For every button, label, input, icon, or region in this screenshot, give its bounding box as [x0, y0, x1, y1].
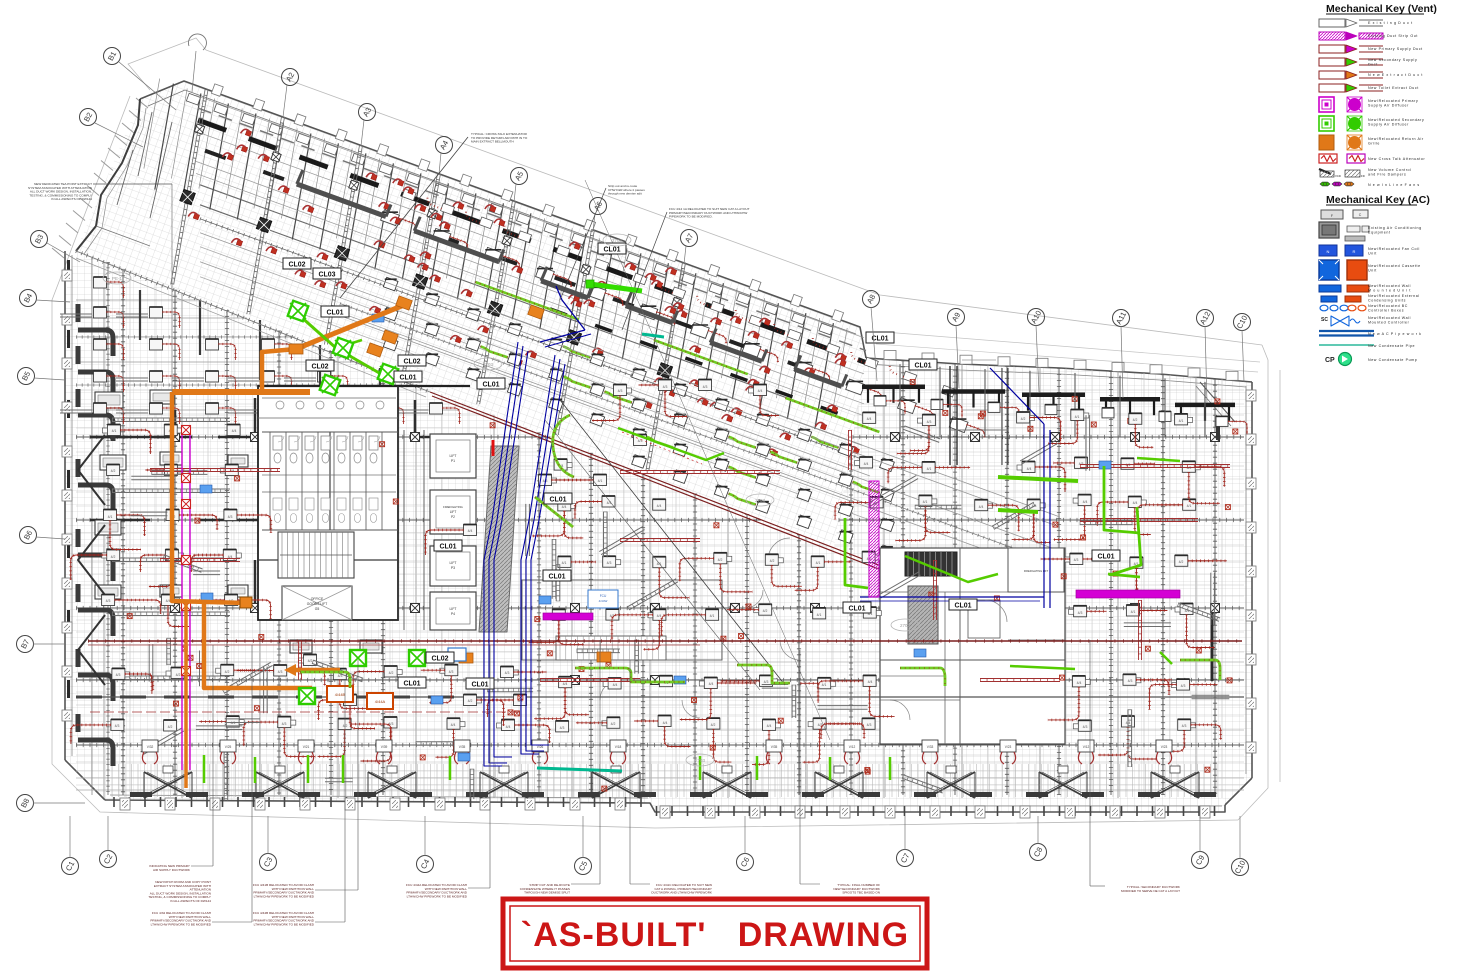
- svg-text:New/Relocated Return Air: New/Relocated Return Air: [1368, 137, 1424, 141]
- svg-text:New Condensate Pump: New Condensate Pump: [1368, 358, 1417, 362]
- svg-text:New Volume Control: New Volume Control: [1368, 168, 1412, 172]
- svg-text:Grille: Grille: [1368, 142, 1380, 146]
- svg-text:Unit: Unit: [1368, 252, 1377, 256]
- svg-text:FD: FD: [1361, 174, 1365, 178]
- svg-text:SC: SC: [1321, 317, 1328, 323]
- svg-text:E x i s t i n g D u c t: E x i s t i n g D u c t: [1368, 21, 1413, 25]
- svg-text:Duct: Duct: [1368, 63, 1378, 67]
- svg-text:New/Relocated BC: New/Relocated BC: [1368, 304, 1408, 308]
- svg-text:R: R: [1353, 249, 1356, 254]
- svg-text:New/Relocated External: New/Relocated External: [1368, 294, 1420, 298]
- svg-text:New Primary Supply Duct: New Primary Supply Duct: [1368, 47, 1423, 51]
- svg-text:Supply Air Diffuser: Supply Air Diffuser: [1368, 104, 1409, 108]
- svg-text:Supply Air Diffuser: Supply Air Diffuser: [1368, 123, 1409, 127]
- svg-text:M o u n t e d U n i t: M o u n t e d U n i t: [1368, 289, 1411, 293]
- svg-text:New Cross Talk Attenuator: New Cross Talk Attenuator: [1368, 157, 1425, 161]
- svg-text:New/Relocated Cassette: New/Relocated Cassette: [1368, 264, 1421, 268]
- svg-text:New Toilet Extract Duct: New Toilet Extract Duct: [1368, 86, 1419, 90]
- svg-text:VCD: VCD: [1335, 174, 1341, 178]
- svg-text:Equipment: Equipment: [1368, 231, 1391, 235]
- svg-text:Controller Boxes: Controller Boxes: [1368, 309, 1404, 313]
- svg-text:Existing Duct Strip Out: Existing Duct Strip Out: [1368, 34, 1418, 38]
- svg-text:Existing Air Conditioning: Existing Air Conditioning: [1368, 226, 1422, 230]
- svg-text:New/Relocated Primary: New/Relocated Primary: [1368, 99, 1418, 103]
- svg-text:New/Relocated Wall: New/Relocated Wall: [1368, 284, 1411, 288]
- svg-text:N: N: [1327, 249, 1330, 254]
- svg-text:Mounted Controller: Mounted Controller: [1368, 321, 1410, 325]
- svg-text:CP: CP: [1325, 357, 1335, 364]
- svg-text:and Fire Dampers: and Fire Dampers: [1368, 173, 1406, 177]
- svg-text:New Condensate Pipe: New Condensate Pipe: [1368, 344, 1415, 348]
- svg-text:New/Relocated Wall: New/Relocated Wall: [1368, 316, 1411, 320]
- svg-text:N e w A C P i p e w o r k: N e w A C P i p e w o r k: [1368, 332, 1421, 336]
- svg-text:New Secondary Supply: New Secondary Supply: [1368, 58, 1417, 62]
- svg-text:New/Relocated Fan Coil: New/Relocated Fan Coil: [1368, 247, 1420, 251]
- svg-text:F: F: [1331, 214, 1333, 218]
- svg-text:New/Relocated Secondary: New/Relocated Secondary: [1368, 118, 1424, 122]
- svg-text:Mechanical Key (Vent): Mechanical Key (Vent): [1326, 3, 1437, 15]
- svg-text:Mechanical Key (AC): Mechanical Key (AC): [1326, 194, 1430, 206]
- svg-text:Unit: Unit: [1368, 269, 1377, 273]
- svg-text:N e w E x t r a c t D u c: N e w E x t r a c t D u c t: [1368, 73, 1423, 77]
- svg-text:Condensing Units: Condensing Units: [1368, 299, 1406, 303]
- svg-text:N e w I n L i n e F a n: N e w I n L i n e F a n s: [1368, 183, 1420, 187]
